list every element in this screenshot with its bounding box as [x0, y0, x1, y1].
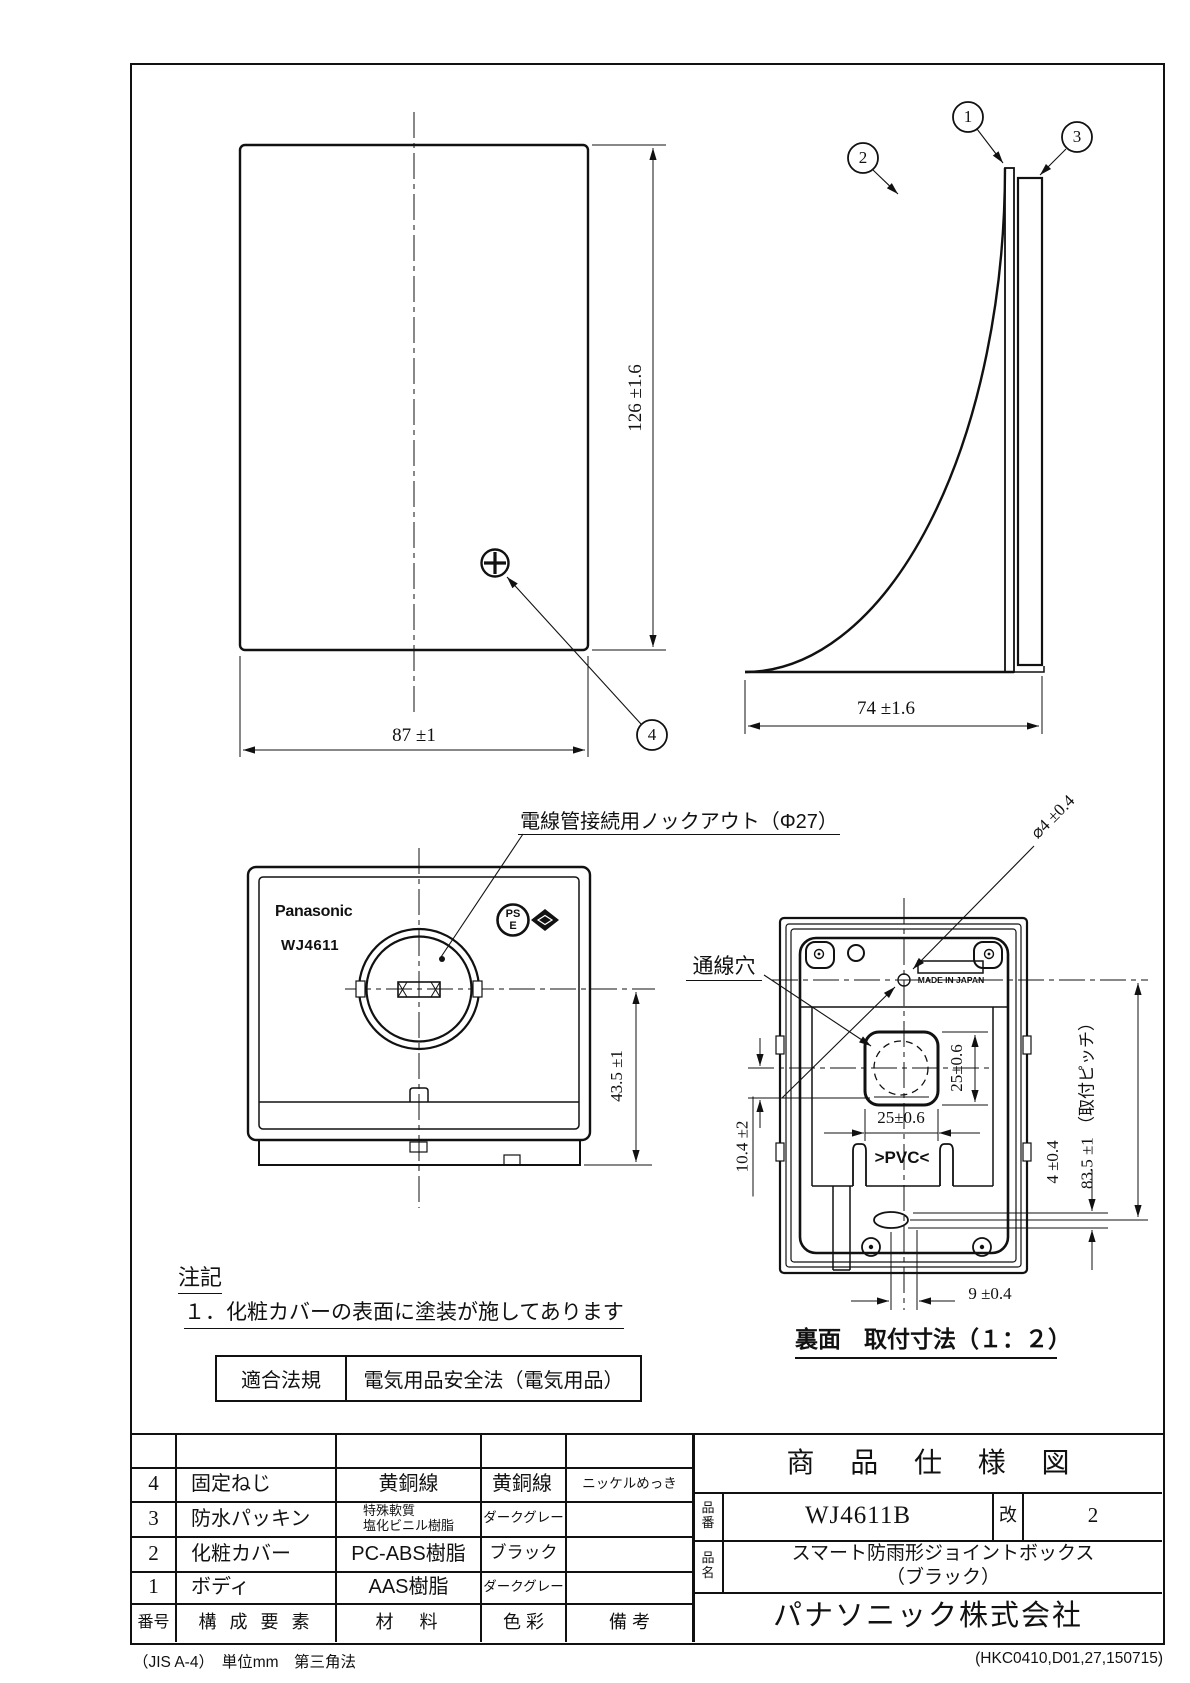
compliance-value: 電気用品安全法（電気用品） — [347, 1357, 640, 1400]
dim-hole-height: 25±0.6 — [947, 1028, 967, 1108]
notes-title: 注記 — [178, 1260, 222, 1294]
compliance-label: 適合法規 — [217, 1357, 347, 1400]
footer-left: （JIS A-4） 単位mm 第三角法 — [133, 1650, 356, 1672]
callout-1: 1 — [953, 107, 983, 127]
title-block: 4 固定ねじ 黄銅線 黄銅線 ニッケルめっき 3 防水パッキン 特殊軟質 塩化ビ… — [130, 1433, 1165, 1645]
dim-front-width: 87 ±1 — [354, 725, 474, 747]
product-name-line1: スマート防雨形ジョイントボックス — [792, 1542, 1095, 1566]
dim-mounting-pitch: 83.5 ±1 （取付ピッチ） — [1073, 992, 1098, 1212]
part-row-color: ダークグレー — [482, 1571, 565, 1603]
made-in-japan: MADE IN JAPAN — [911, 975, 991, 985]
header-color: 色 彩 — [482, 1603, 565, 1642]
part-row-component: 化粧カバー — [177, 1536, 335, 1571]
part-row-no: 4 — [132, 1467, 175, 1501]
sheet-title: 商 品 仕 様 図 — [694, 1435, 1162, 1492]
dim-bottom-offset: 9 ±0.4 — [950, 1284, 1030, 1304]
header-no: 番号 — [132, 1603, 175, 1642]
part-row-component: 防水パッキン — [177, 1501, 335, 1536]
part-row-color: ダークグレー — [482, 1501, 565, 1536]
material-text: 黄銅線 — [379, 1473, 439, 1495]
header-remarks: 備 考 — [567, 1603, 692, 1642]
part-no-label-text: 品番 — [702, 1501, 715, 1531]
revision-label: 改 — [994, 1492, 1022, 1540]
header-material: 材 料 — [337, 1603, 480, 1642]
part-row-component: 固定ねじ — [177, 1467, 335, 1501]
side-view — [745, 102, 1092, 734]
part-number: WJ4611B — [724, 1492, 992, 1540]
header-component: 構 成 要 素 — [177, 1603, 335, 1642]
panasonic-logo: Panasonic — [275, 903, 367, 921]
dim-front-height: 126 ±1.6 — [625, 338, 647, 458]
product-name-label: 品名 — [694, 1540, 722, 1592]
product-name: スマート防雨形ジョイントボックス （ブラック） — [724, 1540, 1162, 1592]
part-row-material: 特殊軟質 塩化ビニル樹脂 — [337, 1501, 480, 1536]
footer-right: (HKC0410,D01,27,150715) — [800, 1650, 1163, 1668]
callout-2: 2 — [848, 148, 878, 168]
part-row-material-cell: 黄銅線 — [337, 1467, 480, 1501]
notes-line1: １．化粧カバーの表面に塗装が施してあります — [184, 1296, 624, 1329]
drawing-sheet: { "callouts": ["1","2","3","4"], "views"… — [0, 0, 1190, 1683]
product-name-label-text: 品名 — [702, 1551, 715, 1581]
pvc-mark: >PVC< — [862, 1148, 942, 1168]
company-name: パナソニック株式会社 — [694, 1592, 1162, 1642]
part-no-label: 品番 — [694, 1492, 722, 1540]
callout-3: 3 — [1062, 127, 1092, 147]
dim-side-depth: 74 ±1.6 — [826, 698, 946, 720]
dim-offset: 10.4 ±2 — [733, 1097, 754, 1197]
pse-mark-ps: PS — [498, 908, 528, 920]
compliance-box: 適合法規 電気用品安全法（電気用品） — [215, 1355, 642, 1402]
part-row-no: 2 — [132, 1536, 175, 1571]
front-view — [240, 112, 667, 757]
knockout-label: 電線管接続用ノックアウト（Φ27） — [518, 805, 840, 835]
dim-bottom-height: 43.5 ±1 — [607, 1016, 627, 1136]
bottom-view — [248, 834, 655, 1208]
dim-slot-width: 4 ±0.4 — [1043, 1112, 1063, 1212]
part-row-no: 3 — [132, 1501, 175, 1536]
part-row-material: PC-ABS樹脂 — [337, 1536, 480, 1571]
pse-mark-e: E — [498, 920, 528, 932]
material-line1: 特殊軟質 — [363, 1504, 415, 1518]
product-name-line2: （ブラック） — [886, 1566, 1000, 1590]
dim-hole-width: 25±0.6 — [861, 1108, 941, 1128]
part-row-component: ボディ — [177, 1571, 335, 1603]
part-row-no: 1 — [132, 1571, 175, 1603]
part-row-material: AAS樹脂 — [337, 1571, 480, 1603]
material-line2: 塩化ビニル樹脂 — [363, 1519, 454, 1533]
drawing-linework — [0, 0, 1190, 1683]
model-text: WJ4611 — [281, 937, 361, 954]
part-row-material: 黄銅線 — [482, 1467, 565, 1501]
back-view-caption: 裏面 取付寸法（１：２） — [795, 1320, 1057, 1359]
part-row-color: ブラック — [482, 1536, 565, 1571]
revision-number: 2 — [1024, 1492, 1162, 1540]
callout-4: 4 — [637, 725, 667, 745]
part-row-remarks: ニッケルめっき — [567, 1467, 692, 1501]
wire-hole-label: 通線穴 — [686, 950, 762, 981]
